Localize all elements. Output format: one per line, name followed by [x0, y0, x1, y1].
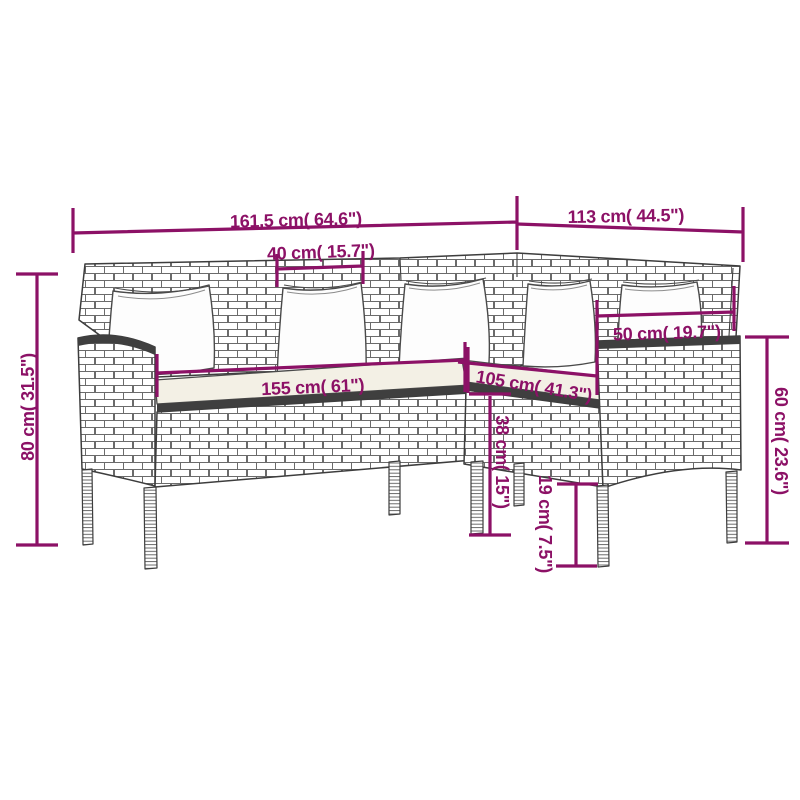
label-height-total: 80 cm( 31.5") [18, 353, 38, 461]
label-pillow: 50 cm( 19.7") [613, 321, 722, 344]
leg-outer-left [82, 469, 93, 545]
sofa-dimension-diagram: 161,5 cm( 64.6") 113 cm( 44.5") 40 cm( 1… [0, 0, 800, 800]
label-back-segment: 40 cm( 15.7") [267, 240, 376, 264]
label-width-left: 161,5 cm( 64.6") [230, 208, 363, 231]
label-leg-height: 19 cm( 7.5") [535, 475, 555, 573]
leg-corner-front [471, 461, 483, 534]
right-armrest-panel [597, 336, 741, 488]
label-seat-height: 38 cm( 15") [492, 415, 512, 509]
pillow-3 [399, 279, 489, 369]
leg-front-left [144, 487, 157, 569]
leg-right-front [597, 485, 609, 567]
leg-corner-back [514, 463, 524, 506]
leg-middle-back [389, 461, 400, 515]
leg-outer-right [726, 471, 737, 543]
pillow-4 [523, 281, 595, 367]
left-armrest [78, 335, 155, 486]
label-width-right: 113 cm( 44.5") [568, 205, 685, 227]
label-height-right: 60 cm( 23.6") [771, 387, 791, 495]
